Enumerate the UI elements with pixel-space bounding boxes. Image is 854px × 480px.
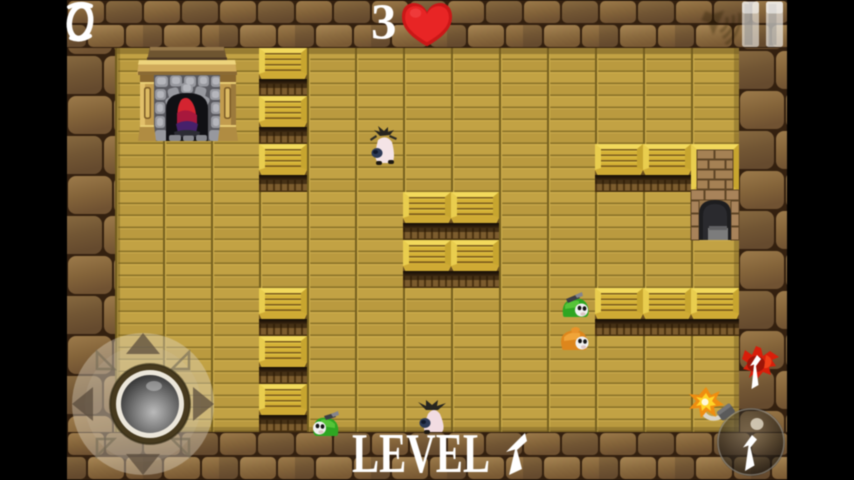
svg-text:3: 3	[371, 0, 397, 51]
svg-text:LEVEL: LEVEL	[352, 423, 490, 480]
